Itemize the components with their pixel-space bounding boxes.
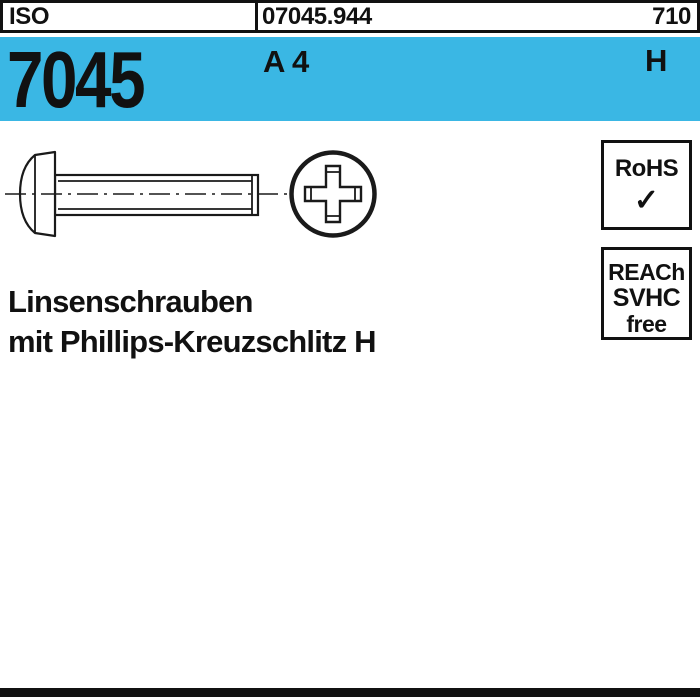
bottom-divider-bar — [0, 688, 700, 697]
material-grade: A 4 — [263, 46, 309, 77]
standard-band: 7045 A 4 H — [0, 37, 700, 121]
screw-technical-drawing — [0, 130, 400, 260]
header-bar: ISO 07045.944 710 — [0, 0, 700, 33]
phillips-head-top-view — [292, 153, 375, 236]
reach-line-1: REACh — [604, 259, 689, 285]
screw-side-view — [5, 152, 290, 236]
standard-label: ISO — [9, 5, 49, 29]
product-title-line1: Linsenschrauben — [8, 282, 376, 322]
drive-type-letter: H — [645, 45, 667, 76]
reach-line-2: SVHC — [604, 285, 689, 311]
article-number: 07045.944 — [262, 5, 372, 29]
rohs-badge: RoHS ✓ — [601, 140, 692, 230]
header-cell-standard: ISO — [3, 3, 258, 30]
rohs-label: RoHS — [604, 157, 689, 181]
reach-line-3: free — [604, 311, 689, 337]
product-title: Linsenschrauben mit Phillips-Kreuzschlit… — [8, 282, 376, 362]
rohs-checkmark-icon: ✓ — [604, 186, 689, 216]
catalog-page-number: 710 — [652, 5, 691, 29]
reach-badge: REACh SVHC free — [601, 247, 692, 340]
header-cell-article: 07045.944 710 — [258, 3, 697, 30]
standard-number: 7045 — [7, 40, 143, 120]
product-title-line2: mit Phillips-Kreuzschlitz H — [8, 322, 376, 362]
